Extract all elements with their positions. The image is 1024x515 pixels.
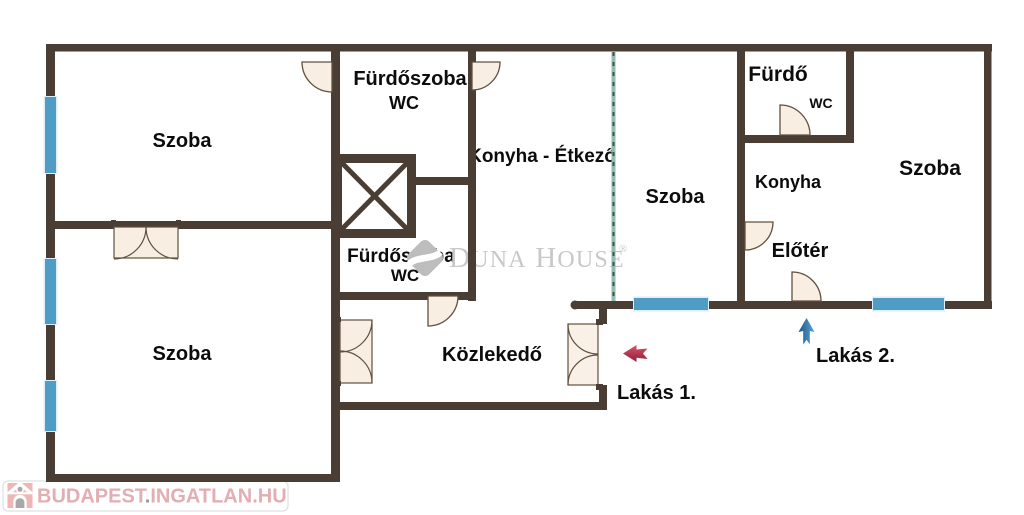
svg-text:WC: WC (809, 95, 832, 111)
svg-text:Közlekedő: Közlekedő (442, 344, 542, 366)
svg-text:®: ® (619, 243, 627, 255)
svg-text:Fürdő: Fürdő (748, 63, 807, 86)
svg-text:BUDAPEST.INGATLAN.HU: BUDAPEST.INGATLAN.HU (37, 486, 287, 508)
svg-text:Szoba: Szoba (899, 157, 961, 180)
svg-text:WC: WC (391, 266, 419, 285)
svg-text:Előtér: Előtér (772, 240, 829, 262)
svg-text:Szoba: Szoba (153, 130, 213, 152)
svg-text:Lakás 1.: Lakás 1. (617, 382, 696, 404)
svg-text:Szoba: Szoba (153, 343, 213, 365)
svg-text:Lakás 2.: Lakás 2. (816, 345, 895, 367)
svg-text:Fürdőszoba: Fürdőszoba (353, 68, 467, 90)
svg-text:WC: WC (389, 93, 419, 113)
svg-text:Konyha: Konyha (755, 172, 822, 192)
svg-text:Szoba: Szoba (646, 186, 706, 208)
svg-text:Konyha - Étkező: Konyha - Étkező (468, 145, 616, 167)
